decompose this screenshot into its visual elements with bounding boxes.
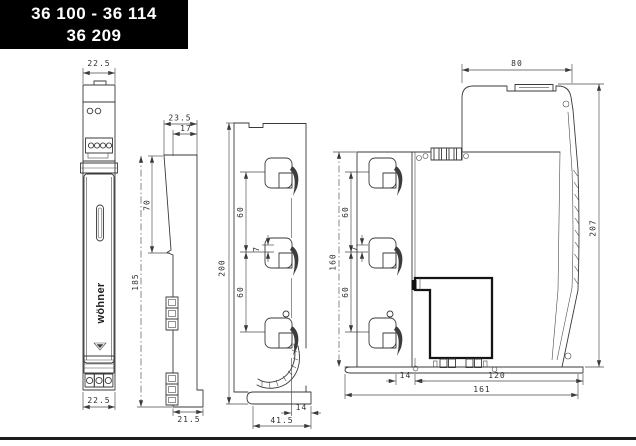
device-terminals — [434, 359, 488, 368]
front-control-terminals — [86, 138, 113, 158]
base-plate — [345, 366, 583, 373]
side-profile-outline — [164, 155, 203, 407]
front-body — [84, 174, 114, 363]
serrated-spring-clip — [257, 344, 300, 388]
front-slot — [97, 205, 104, 241]
front-power-terminals — [84, 356, 114, 387]
drawing-page: 36 100 - 36 114 36 209 22.5 — [0, 0, 636, 446]
dim-profile-pitch-bottom: 60 — [236, 286, 245, 298]
dim-front-width-top: 22.5 — [87, 59, 110, 68]
dim-assembly-offset: 7 — [350, 246, 359, 252]
busbar-profile-view: 200 — [218, 123, 322, 429]
dim-side-height: 185 — [131, 273, 140, 290]
side-view: 23.5 17 70 185 — [131, 114, 203, 425]
dim-profile-height: 200 — [218, 259, 227, 276]
dim-front-width-bottom: 22.5 — [87, 396, 110, 405]
dim-assembly-base-total: 161 — [473, 385, 490, 394]
mounted-device — [412, 278, 493, 368]
dim-side-front-depth: 17 — [180, 124, 192, 133]
dim-assembly-pitch-bottom: 60 — [341, 286, 350, 298]
dim-profile-foot-overhang: 14 — [296, 403, 308, 412]
dim-assembly-top-width: 80 — [511, 59, 523, 68]
busbar-hooks — [265, 158, 298, 356]
technical-drawing: 22.5 — [0, 0, 636, 446]
dim-side-depth: 23.5 — [168, 114, 191, 123]
dim-assembly-mount-height: 160 — [329, 253, 338, 270]
side-contacts-upper — [166, 297, 178, 330]
din-clip-side — [552, 110, 579, 367]
top-housing — [462, 85, 573, 153]
drawing-frame-bottom — [0, 437, 636, 440]
front-led-1 — [87, 108, 93, 114]
dim-assembly-base-depth: 120 — [488, 371, 505, 380]
dim-profile-offset: 7 — [252, 246, 261, 252]
dim-profile-pitch-top: 60 — [236, 206, 245, 218]
side-contacts-lower — [166, 373, 178, 405]
dim-assembly-base-offset: 14 — [400, 371, 412, 380]
dim-assembly-total-height: 207 — [589, 219, 598, 236]
dim-side-slope-height: 70 — [143, 199, 152, 211]
wohner-logo: wöhner — [95, 282, 107, 324]
adapter-body — [357, 152, 560, 367]
adapter-hooks — [369, 158, 402, 356]
triangle-mark-icon — [94, 343, 106, 350]
front-top-tab — [94, 81, 106, 85]
front-led-2 — [95, 108, 101, 114]
dim-side-foot: 21.5 — [177, 415, 200, 424]
front-view: 22.5 — [81, 59, 118, 410]
dim-profile-foot: 41.5 — [270, 416, 293, 425]
dim-assembly-pitch-top: 60 — [341, 206, 350, 218]
assembly-view: 80 207 160 60 60 7 — [329, 59, 605, 399]
